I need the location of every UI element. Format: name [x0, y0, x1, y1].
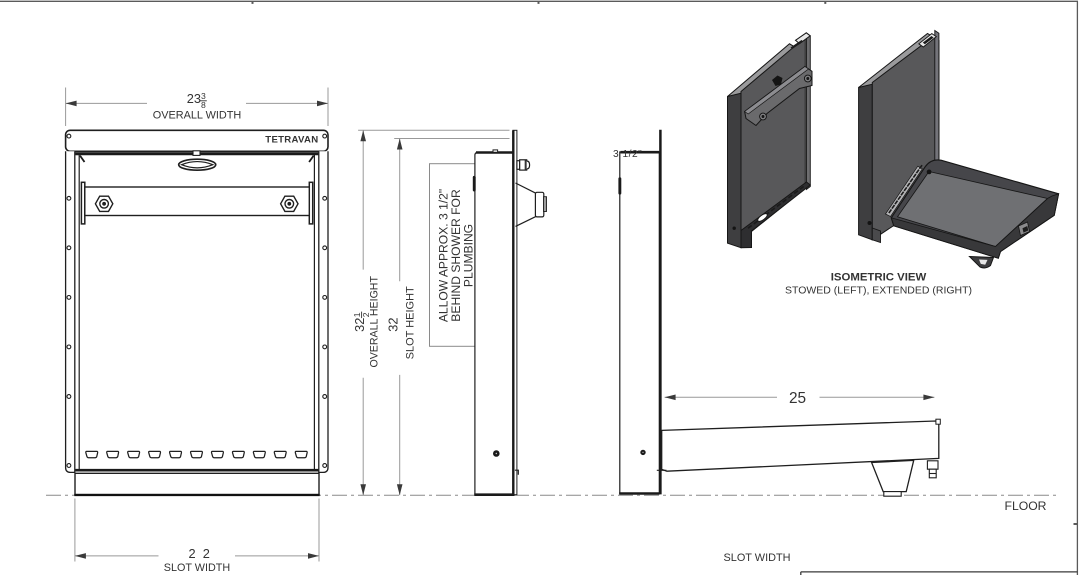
svg-text:32: 32: [352, 318, 367, 332]
svg-text:ISOMETRIC VIEW: ISOMETRIC VIEW: [831, 272, 927, 284]
svg-text:32: 32: [386, 317, 401, 331]
svg-text:SLOT WIDTH: SLOT WIDTH: [724, 552, 791, 564]
svg-text:FLOOR: FLOOR: [1005, 499, 1047, 513]
svg-text:SLOT HEIGHT: SLOT HEIGHT: [404, 286, 416, 359]
svg-text:25: 25: [789, 390, 806, 407]
svg-text:SLOT WIDTH: SLOT WIDTH: [164, 562, 230, 574]
svg-text:OVERALL WIDTH: OVERALL WIDTH: [153, 110, 242, 122]
svg-text:OVERALL HEIGHT: OVERALL HEIGHT: [369, 276, 381, 368]
svg-text:3 1/2": 3 1/2": [613, 149, 642, 160]
svg-text:STOWED (LEFT), EXTENDED (RIGHT: STOWED (LEFT), EXTENDED (RIGHT): [785, 285, 972, 297]
svg-text:23: 23: [187, 91, 201, 106]
svg-text:2: 2: [189, 546, 196, 561]
svg-text:2: 2: [203, 546, 210, 561]
svg-text:PLUMBING: PLUMBING: [462, 224, 476, 287]
svg-text:TETRAVAN: TETRAVAN: [265, 135, 318, 146]
